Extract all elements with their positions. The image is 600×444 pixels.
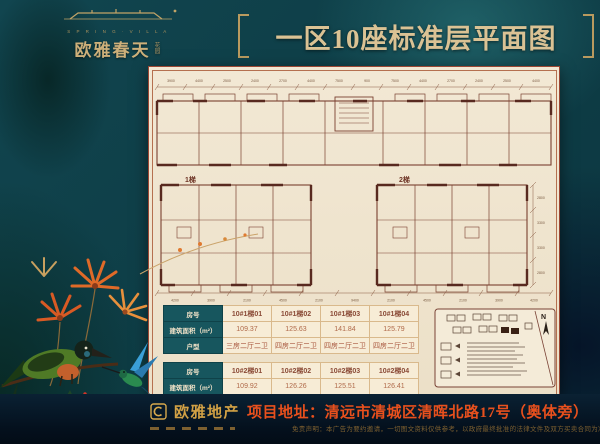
footer: 欧雅地产 项目地址：清远市清城区清晖北路17号（奥体旁） 免责声明：本广告为要约… bbox=[0, 394, 600, 444]
svg-text:2500: 2500 bbox=[223, 79, 231, 83]
row-header: 户型 bbox=[164, 338, 223, 354]
floorplan-drawing: 3900 4400 2500 2400 2700 4400 7500 900 7… bbox=[149, 67, 559, 303]
dimension-labels-bottom: 4200 3900 2100 4500 2100 9400 2100 4500 … bbox=[171, 299, 538, 303]
brand-name-en: S P R I N G · V I L L A bbox=[50, 29, 186, 34]
address-label: 项目地址： bbox=[247, 405, 325, 421]
unit-no-cell: 10#1梯04 bbox=[370, 306, 419, 322]
row-header: 房号 bbox=[164, 306, 223, 322]
unit-no-cell: 10#1梯02 bbox=[272, 306, 321, 322]
flower-stems bbox=[50, 289, 95, 386]
page-title-text: 一区10座标准层平面图 bbox=[249, 17, 583, 56]
svg-text:2700: 2700 bbox=[279, 79, 287, 83]
unit-no-cell: 10#2梯02 bbox=[272, 363, 321, 379]
green-bird bbox=[0, 341, 112, 389]
svg-text:N: N bbox=[541, 314, 546, 321]
block-label-right: 2梯 bbox=[399, 175, 410, 184]
unit-area-cell: 109.92 bbox=[223, 379, 272, 395]
dimension-line-bottom bbox=[155, 290, 553, 296]
svg-text:2400: 2400 bbox=[251, 79, 259, 83]
orange-flowers bbox=[32, 258, 146, 321]
svg-text:3900: 3900 bbox=[207, 299, 215, 303]
upper-apartment-band bbox=[157, 94, 551, 165]
unit-type-cell: 四房二厅二卫 bbox=[370, 338, 419, 354]
developer-name: 欧雅地产 bbox=[174, 401, 240, 422]
svg-text:2500: 2500 bbox=[503, 79, 511, 83]
unit-type-cell: 四房二厅二卫 bbox=[321, 338, 370, 354]
bracket-left-icon bbox=[238, 14, 249, 58]
developer-tagline-marks bbox=[150, 427, 235, 430]
svg-text:4400: 4400 bbox=[532, 79, 540, 83]
branch bbox=[2, 364, 118, 386]
svg-text:4500: 4500 bbox=[279, 299, 287, 303]
brand-logo: S P R I N G · V I L L A 欧雅春天 花园 bbox=[50, 8, 186, 61]
svg-text:4200: 4200 bbox=[530, 299, 538, 303]
svg-text:2800: 2800 bbox=[537, 271, 545, 275]
footer-sub-row: 免责声明：本广告为要约邀请，一切图文资料仅供参考，以政府最终批准的法律文件及双方… bbox=[150, 423, 600, 433]
unit-type-cell: 四房二厅二卫 bbox=[272, 338, 321, 354]
brand-name-cn: 欧雅春天 花园 bbox=[50, 36, 186, 61]
svg-text:2400: 2400 bbox=[475, 79, 483, 83]
project-address: 项目地址：清远市清城区清晖北路17号（奥体旁） bbox=[247, 401, 589, 422]
svg-text:900: 900 bbox=[364, 79, 370, 83]
unit-table-1: 房号 10#1梯01 10#1梯02 10#1梯03 10#1梯04 建筑面积（… bbox=[163, 305, 419, 354]
poster: S P R I N G · V I L L A 欧雅春天 花园 一区10座标准层… bbox=[0, 0, 600, 444]
unit-area-cell: 109.37 bbox=[223, 322, 272, 338]
unit-area-cell: 126.26 bbox=[272, 379, 321, 395]
footer-main-row: 欧雅地产 项目地址：清远市清城区清晖北路17号（奥体旁） bbox=[150, 401, 589, 422]
brand-name-cn-text: 欧雅春天 bbox=[75, 36, 151, 61]
row-header: 房号 bbox=[164, 363, 223, 379]
unit-area-cell: 125.51 bbox=[321, 379, 370, 395]
svg-text:4400: 4400 bbox=[307, 79, 315, 83]
row-header: 建筑面积（m²） bbox=[164, 322, 223, 338]
lower-right-cluster bbox=[377, 185, 527, 292]
unit-no-cell: 10#2梯01 bbox=[223, 363, 272, 379]
svg-text:2100: 2100 bbox=[387, 299, 395, 303]
address-value: 清远市清城区清晖北路17号（奥体旁） bbox=[325, 405, 589, 421]
svg-text:4400: 4400 bbox=[195, 79, 203, 83]
svg-text:4500: 4500 bbox=[423, 299, 431, 303]
svg-text:9400: 9400 bbox=[351, 299, 359, 303]
unit-no-cell: 10#1梯03 bbox=[321, 306, 370, 322]
unit-area-cell: 125.63 bbox=[272, 322, 321, 338]
svg-text:2800: 2800 bbox=[537, 196, 545, 200]
brand-name-suffix: 花园 bbox=[154, 43, 162, 55]
svg-text:7500: 7500 bbox=[391, 79, 399, 83]
svg-text:7500: 7500 bbox=[335, 79, 343, 83]
unit-area-cell: 141.84 bbox=[321, 322, 370, 338]
bracket-right-icon bbox=[583, 14, 594, 58]
unit-no-cell: 10#2梯04 bbox=[370, 363, 419, 379]
dimension-line-top bbox=[155, 84, 553, 90]
svg-text:4400: 4400 bbox=[419, 79, 427, 83]
lower-left-cluster bbox=[161, 185, 311, 292]
unit-no-cell: 10#1梯01 bbox=[223, 306, 272, 322]
svg-text:2700: 2700 bbox=[447, 79, 455, 83]
page-title: 一区10座标准层平面图 bbox=[238, 13, 594, 59]
dimension-labels-right: 2800 3300 3300 2800 bbox=[537, 196, 545, 275]
dimension-line-right bbox=[530, 182, 536, 288]
floorplan-sheet: 3900 4400 2500 2400 2700 4400 7500 900 7… bbox=[148, 66, 560, 398]
row-header: 建筑面积（m²） bbox=[164, 379, 223, 395]
roofline-icon bbox=[58, 8, 178, 23]
svg-text:2100: 2100 bbox=[315, 299, 323, 303]
site-map: N bbox=[433, 307, 557, 389]
disclaimer-text: 免责声明：本广告为要约邀请，一切图文资料仅供参考，以政府最终批准的法律文件及双方… bbox=[292, 423, 600, 433]
svg-text:3300: 3300 bbox=[537, 221, 545, 225]
developer-logo-icon bbox=[150, 403, 167, 420]
svg-text:2100: 2100 bbox=[243, 299, 251, 303]
unit-no-cell: 10#2梯03 bbox=[321, 363, 370, 379]
unit-type-cell: 三房二厅二卫 bbox=[223, 338, 272, 354]
unit-area-cell: 126.41 bbox=[370, 379, 419, 395]
svg-text:3900: 3900 bbox=[167, 79, 175, 83]
svg-text:3900: 3900 bbox=[495, 299, 503, 303]
block-label-left: 1梯 bbox=[185, 175, 196, 184]
dimension-labels-top: 3900 4400 2500 2400 2700 4400 7500 900 7… bbox=[167, 79, 540, 83]
svg-text:2100: 2100 bbox=[459, 299, 467, 303]
svg-text:4200: 4200 bbox=[171, 299, 179, 303]
unit-area-cell: 125.79 bbox=[370, 322, 419, 338]
svg-text:3300: 3300 bbox=[537, 246, 545, 250]
